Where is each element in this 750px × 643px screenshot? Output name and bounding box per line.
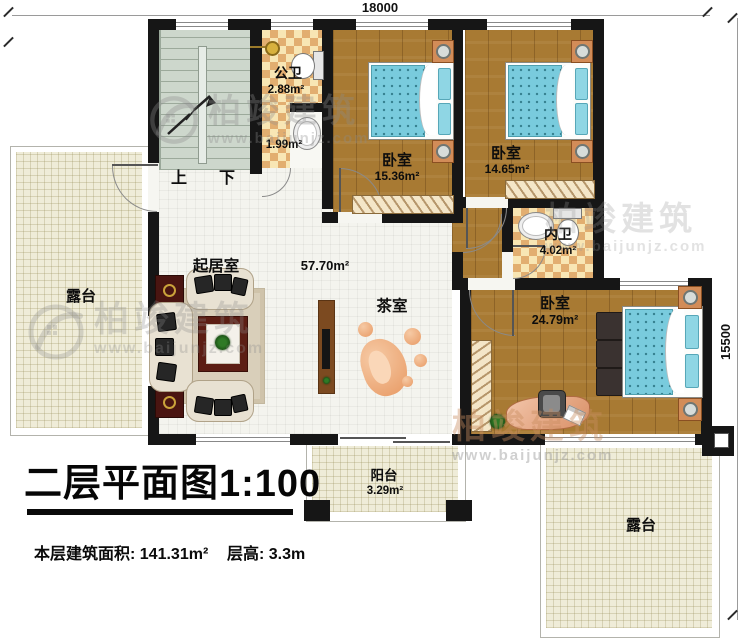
bedroom1-door-panel xyxy=(339,168,341,212)
dimension-height-label: 15500 xyxy=(718,312,734,372)
dimension-width-label: 18000 xyxy=(340,0,420,15)
window xyxy=(176,19,228,30)
bedroom2-door-opening xyxy=(466,197,508,208)
chair-icon xyxy=(538,390,566,418)
plan-title: 二层平面图1:100 xyxy=(24,452,321,507)
wall-right-upper xyxy=(593,19,604,290)
terrace-right xyxy=(540,440,720,638)
label-inner-bath-area: 4.02m² xyxy=(523,245,593,257)
toilet-icon xyxy=(553,208,582,219)
light-fixture-icon xyxy=(265,41,280,56)
coffee-table-icon xyxy=(198,316,248,372)
plant-icon xyxy=(490,414,505,429)
dimension-tick xyxy=(3,37,14,48)
window xyxy=(196,434,290,445)
label-wash-area: 1.99m² xyxy=(252,139,316,151)
label-bedroom1-name: 卧室 xyxy=(357,153,437,169)
nightstand-icon xyxy=(678,286,702,309)
sofa-icon xyxy=(149,302,193,392)
public-bath-passage-floor xyxy=(262,105,290,168)
nightstand-icon xyxy=(571,40,593,63)
label-master-name: 卧室 xyxy=(525,296,585,312)
terrace-door-panel xyxy=(112,164,158,166)
stair-direction-arrow-icon xyxy=(160,86,224,140)
label-living-area: 57.70m² xyxy=(285,259,365,273)
label-bedroom2-name: 卧室 xyxy=(466,146,546,162)
innerbath-door-opening xyxy=(502,252,513,278)
wardrobe-icon xyxy=(352,195,454,214)
label-terrace-right: 露台 xyxy=(608,518,674,534)
window xyxy=(545,434,695,445)
floor-plan-page: { "plan": { "dimensions": { "width_mm": … xyxy=(0,0,750,643)
label-stairs-up: 上 xyxy=(168,170,190,187)
nightstand-icon xyxy=(571,140,593,163)
wardrobe-icon xyxy=(471,340,492,432)
nightstand-icon xyxy=(678,398,702,421)
label-bedroom1-area: 15.36m² xyxy=(352,170,442,183)
balcony-sliding-door xyxy=(338,434,452,445)
label-master-area: 24.79m² xyxy=(518,314,592,328)
master-door-panel xyxy=(512,290,514,336)
bed-icon xyxy=(368,62,454,140)
label-living-name: 起居室 xyxy=(178,259,254,276)
label-balcony-name: 阳台 xyxy=(352,469,416,484)
tv-cabinet-icon xyxy=(318,300,335,394)
window xyxy=(487,19,571,30)
dimension-line-right xyxy=(737,18,738,620)
dimension-line-top xyxy=(12,15,710,16)
label-bedroom2-area: 14.65m² xyxy=(462,163,552,176)
title-underline xyxy=(27,509,293,515)
label-terrace-left: 露台 xyxy=(48,289,114,305)
wall-hallway-left xyxy=(452,252,463,278)
master-door-opening xyxy=(468,278,515,290)
bed-icon xyxy=(622,306,703,398)
bed-icon xyxy=(505,62,591,140)
wall-wash-stub xyxy=(290,103,322,112)
label-tea-room: 茶室 xyxy=(364,299,420,316)
wall-publicbath-right xyxy=(322,19,333,209)
floor-height-text: 层高: 3.3m xyxy=(227,540,305,564)
label-public-bath-area: 2.88m² xyxy=(254,84,318,96)
tea-art-icon xyxy=(356,322,434,406)
label-inner-bath-name: 内卫 xyxy=(528,227,588,242)
sofa-icon xyxy=(186,380,254,422)
nightstand-icon xyxy=(432,40,454,63)
window xyxy=(356,19,428,30)
label-public-bath-name: 公卫 xyxy=(258,66,318,81)
balcony-pier xyxy=(446,500,472,521)
wardrobe-icon xyxy=(505,180,595,199)
label-stairs-down: 下 xyxy=(216,170,238,187)
floor-area-text: 本层建筑面积: 141.31m² xyxy=(34,540,208,564)
window xyxy=(271,19,313,30)
label-balcony-area: 3.29m² xyxy=(350,485,420,497)
wall-master-left xyxy=(460,290,471,434)
